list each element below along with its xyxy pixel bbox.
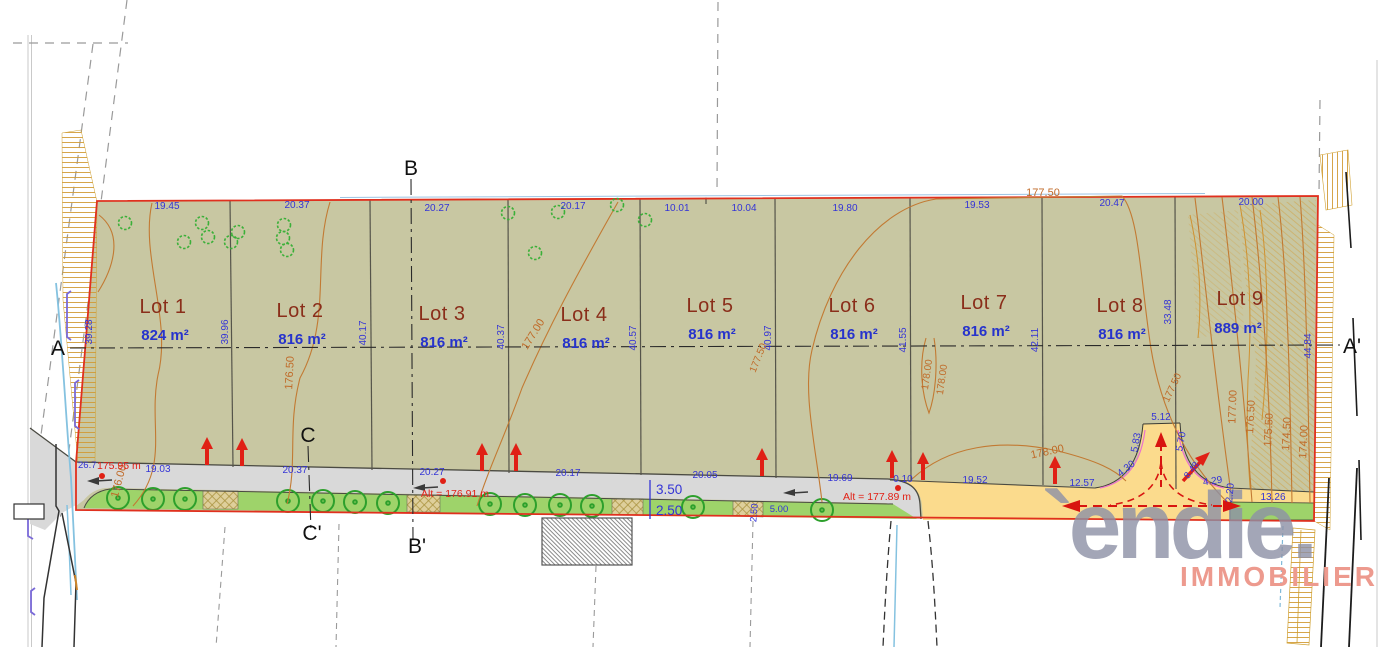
dim-top-0: 19.45 [154, 201, 179, 212]
subdivision-plan-page: `endie. IMMOBILIER Lot 1 824 [0, 0, 1400, 647]
dim-green-length: 13.26 [1260, 492, 1285, 503]
lot-1-name: Lot 1 [140, 296, 187, 318]
section-c-prime: C' [302, 522, 321, 545]
dim-top-5: 10.04 [731, 203, 756, 214]
section-a: A [51, 337, 65, 360]
dim-parking-width: 2.50 [748, 503, 761, 522]
lot-2-area: 816 m² [278, 331, 326, 348]
contour-label-10: 176.50 [1244, 400, 1258, 434]
dim-bottom-2: 20.27 [419, 467, 444, 478]
contour-label-11: 175.50 [1262, 413, 1276, 447]
alt-east: Alt = 177.89 m [843, 491, 911, 503]
section-a-prime: A' [1343, 335, 1361, 358]
section-c: C [300, 424, 315, 447]
dim-top-7: 19.53 [964, 200, 989, 211]
section-b-prime: B' [408, 535, 426, 558]
lot-7-area: 816 m² [962, 323, 1010, 340]
lot-4-area: 816 m² [562, 335, 610, 352]
dim-left-offset: 26.7 [78, 460, 97, 471]
dim-side-2: 40.17 [358, 320, 369, 345]
dim-top-3: 20.17 [560, 201, 585, 212]
dim-side-4: 40.57 [628, 325, 639, 350]
lot-2-name: Lot 2 [277, 300, 324, 322]
dim-top-6: 19.80 [832, 203, 857, 214]
contour-label-12: 174.50 [1280, 417, 1294, 451]
dim-turn-edge: 2.20 [1224, 482, 1237, 503]
lot-4-name: Lot 4 [561, 304, 608, 326]
dim-top-4: 10.01 [664, 203, 689, 214]
plan-drawing: `endie. IMMOBILIER Lot 1 824 [0, 0, 1400, 647]
dim-top-8: 20.47 [1099, 198, 1124, 209]
dim-side-1: 39.96 [220, 319, 231, 344]
dim-top-2: 20.27 [424, 203, 449, 214]
dim-bottom-0: 19.03 [145, 464, 170, 475]
lot-1-area: 824 m² [141, 327, 189, 344]
lot-5-name: Lot 5 [687, 295, 734, 317]
dim-side-9: 44.84 [1303, 333, 1314, 358]
dim-top-9: 20.00 [1238, 197, 1263, 208]
dim-bottom-4: 20.05 [692, 470, 717, 481]
dim-side-7: 42.11 [1030, 327, 1041, 352]
dim-carriageway: 3.50 [656, 482, 682, 497]
lot-9-name: Lot 9 [1217, 288, 1264, 310]
dim-bottom-5: 19.69 [827, 473, 852, 484]
dim-side-3: 40.37 [496, 324, 507, 349]
contour-label-3: 177.50 [1026, 187, 1060, 199]
logo-tagline-text: IMMOBILIER [1180, 561, 1378, 592]
lot-7-name: Lot 7 [961, 292, 1008, 314]
contour-label-13: 174.00 [1297, 425, 1311, 459]
lot-5-area: 816 m² [688, 326, 736, 343]
dim-side-6: 41.55 [898, 327, 909, 352]
dim-side-0: 39.28 [84, 319, 95, 344]
dim-parking-length: 5.00 [770, 504, 789, 515]
alt-west: 175.95 m [97, 460, 141, 472]
contour-label-1: 176.50 [283, 356, 297, 390]
dim-bottom-6: 0.10 [893, 474, 913, 485]
dim-bottom-7: 19.52 [962, 475, 987, 486]
dim-verge: 2.50 [656, 503, 682, 518]
lot-3-name: Lot 3 [419, 303, 466, 325]
lot-9-area: 889 m² [1214, 320, 1262, 337]
alt-center: Alt = 176.91 m [421, 488, 489, 500]
dim-side-8: 33.48 [1163, 299, 1174, 324]
contour-label-9: 177.00 [1226, 390, 1239, 424]
dim-turn-top: 5.12 [1151, 412, 1171, 423]
lot-8-name: Lot 8 [1097, 295, 1144, 317]
lot-6-area: 816 m² [830, 326, 878, 343]
dim-top-1: 20.37 [284, 200, 309, 211]
dim-bottom-8: 12.57 [1069, 478, 1094, 489]
existing-building [542, 518, 632, 565]
section-b: B [404, 157, 418, 180]
dim-bottom-3: 20.17 [555, 468, 580, 479]
lot-3-area: 816 m² [420, 334, 468, 351]
dim-bottom-1: 20.37 [282, 465, 307, 476]
lot-6-name: Lot 6 [829, 295, 876, 317]
lot-8-area: 816 m² [1098, 326, 1146, 343]
